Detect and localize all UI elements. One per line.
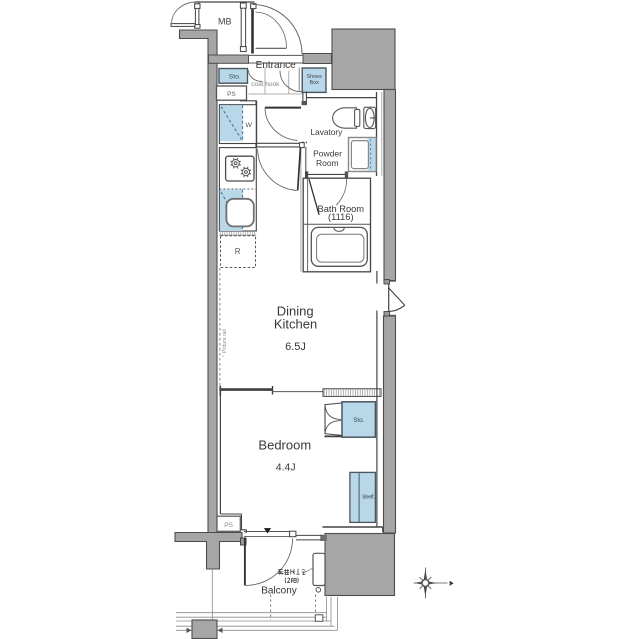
- svg-text:Shoes: Shoes: [307, 74, 323, 80]
- svg-text:PS: PS: [224, 522, 233, 529]
- svg-text:6.5J: 6.5J: [285, 341, 306, 353]
- svg-text:Balcony: Balcony: [261, 585, 297, 596]
- svg-text:R: R: [235, 247, 241, 256]
- svg-text:coat hook: coat hook: [251, 81, 280, 88]
- svg-text:⌜ Picture rail: ⌜ Picture rail: [222, 329, 228, 356]
- svg-text:4.4J: 4.4J: [276, 462, 296, 474]
- svg-text:MB: MB: [218, 16, 232, 26]
- svg-text:Kitchen: Kitchen: [274, 316, 317, 331]
- svg-text:Sto.: Sto.: [353, 417, 364, 424]
- svg-text:Shelf.: Shelf.: [362, 495, 375, 501]
- svg-text:Entrance: Entrance: [256, 60, 296, 71]
- svg-text:PS: PS: [227, 91, 236, 98]
- svg-text:(1116): (1116): [328, 212, 354, 222]
- svg-text:Sto.: Sto.: [229, 73, 241, 80]
- svg-text:W: W: [245, 122, 252, 129]
- svg-text:Lavatory: Lavatory: [310, 127, 343, 137]
- svg-text:Bedroom: Bedroom: [258, 438, 311, 453]
- svg-text:Room: Room: [316, 158, 339, 168]
- svg-text:Box: Box: [310, 80, 320, 86]
